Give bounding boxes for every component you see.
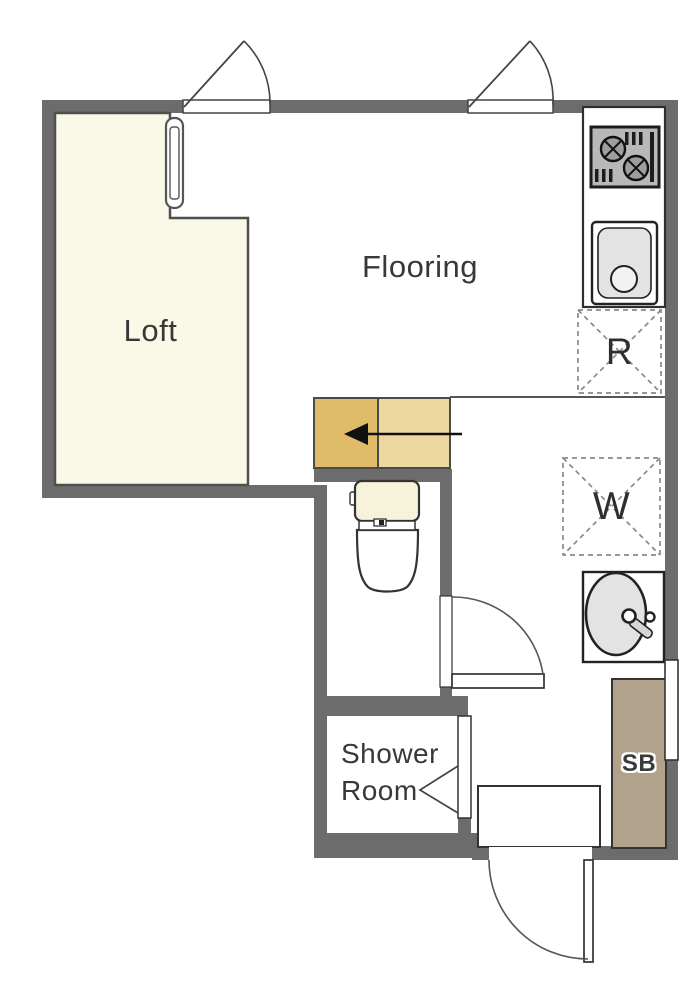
entrance-door-icon <box>489 860 593 962</box>
loft-ladder-icon <box>166 118 183 208</box>
wall-entry-step <box>472 846 489 860</box>
shower-room-label: Shower Room <box>341 735 456 815</box>
wall-wc-left <box>314 485 327 858</box>
stove-icon <box>591 127 659 187</box>
washer-space-label: W <box>563 458 660 555</box>
wall-top-mid <box>270 100 468 113</box>
flooring-room-label: Flooring <box>330 244 510 290</box>
wall-right-upper <box>665 100 678 660</box>
shower-room-label-line1: Shower <box>341 735 439 772</box>
shoe-box-label: SB <box>612 679 666 848</box>
toilet-door-icon <box>440 596 544 688</box>
refrigerator-space-label: R <box>578 310 661 393</box>
shower-room-label-line2: Room <box>341 772 418 809</box>
wall-shower-right-lower <box>458 818 471 834</box>
side-window-icon <box>665 660 678 760</box>
wall-wc-right-upper <box>440 469 452 596</box>
washbasin-icon <box>583 572 664 662</box>
window-left-icon <box>183 41 270 113</box>
window-right-icon <box>468 41 553 113</box>
wall-left <box>42 100 55 498</box>
wall-loft-bottom <box>42 485 327 498</box>
wall-top-left <box>42 100 183 113</box>
genkan-step <box>478 786 600 860</box>
loft-room-label: Loft <box>88 308 213 354</box>
kitchen-sink-icon <box>592 222 657 304</box>
wall-wc-shower-divider <box>314 696 468 716</box>
floor-plan: Flooring Loft Shower Room R W SB <box>0 0 693 999</box>
toilet-icon <box>350 481 419 592</box>
wall-shower-bottom <box>314 833 482 858</box>
loft-area <box>55 113 248 485</box>
